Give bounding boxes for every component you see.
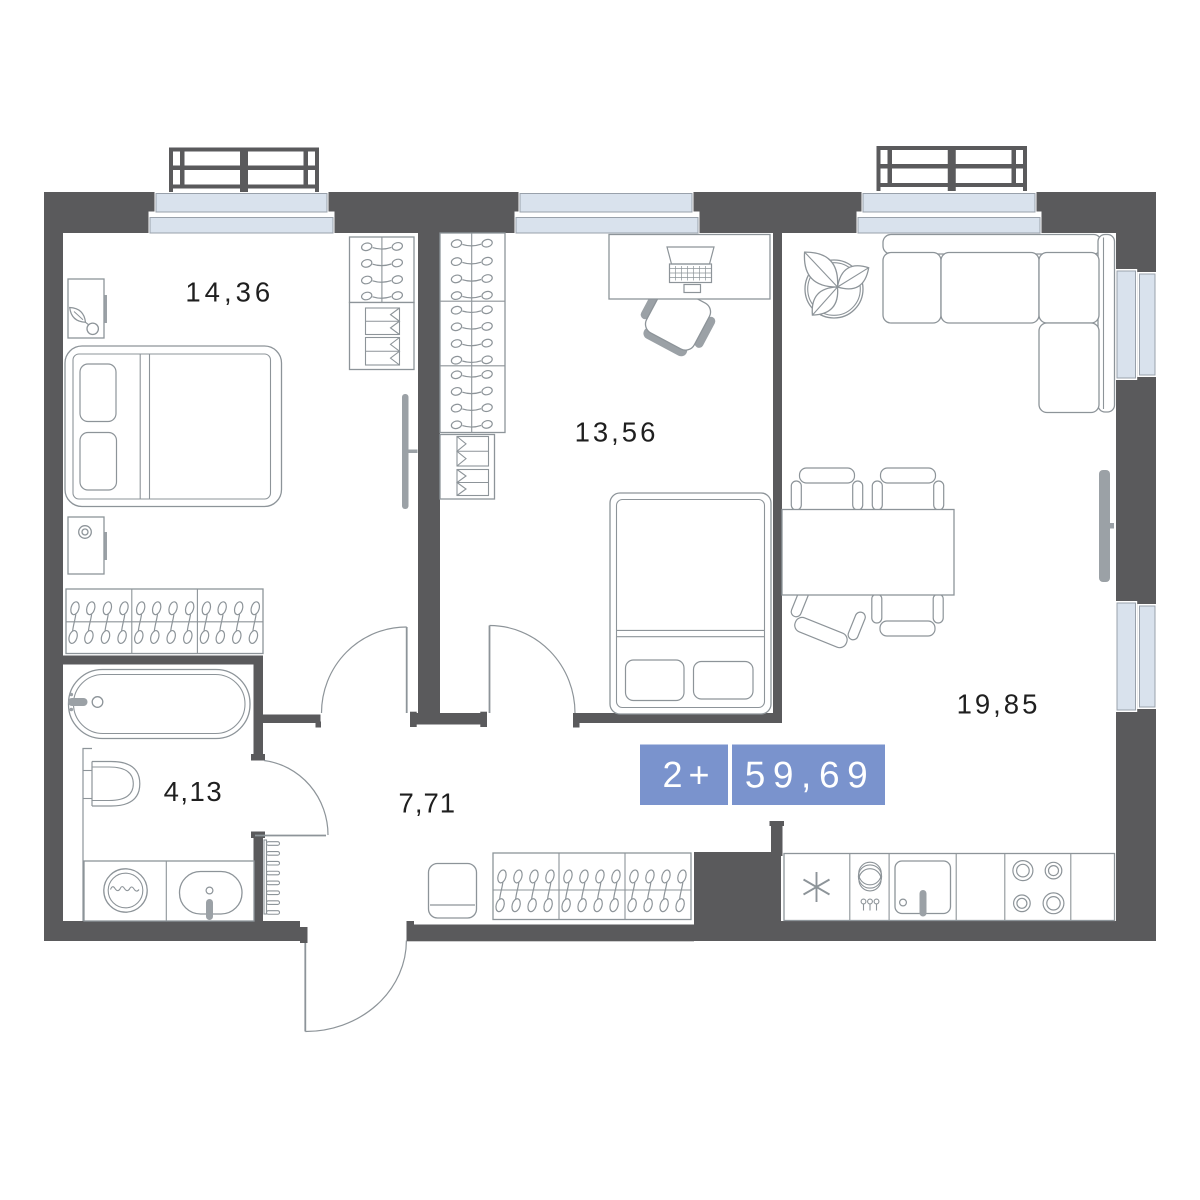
svg-text:19,85: 19,85 [957,688,1041,719]
svg-text:14,36: 14,36 [185,277,274,308]
svg-text:13,56: 13,56 [575,417,659,448]
svg-text:2+: 2+ [662,754,715,795]
svg-text:7,71: 7,71 [399,788,457,819]
svg-text:59,69: 59,69 [745,755,876,796]
svg-text:4,13: 4,13 [164,776,224,807]
